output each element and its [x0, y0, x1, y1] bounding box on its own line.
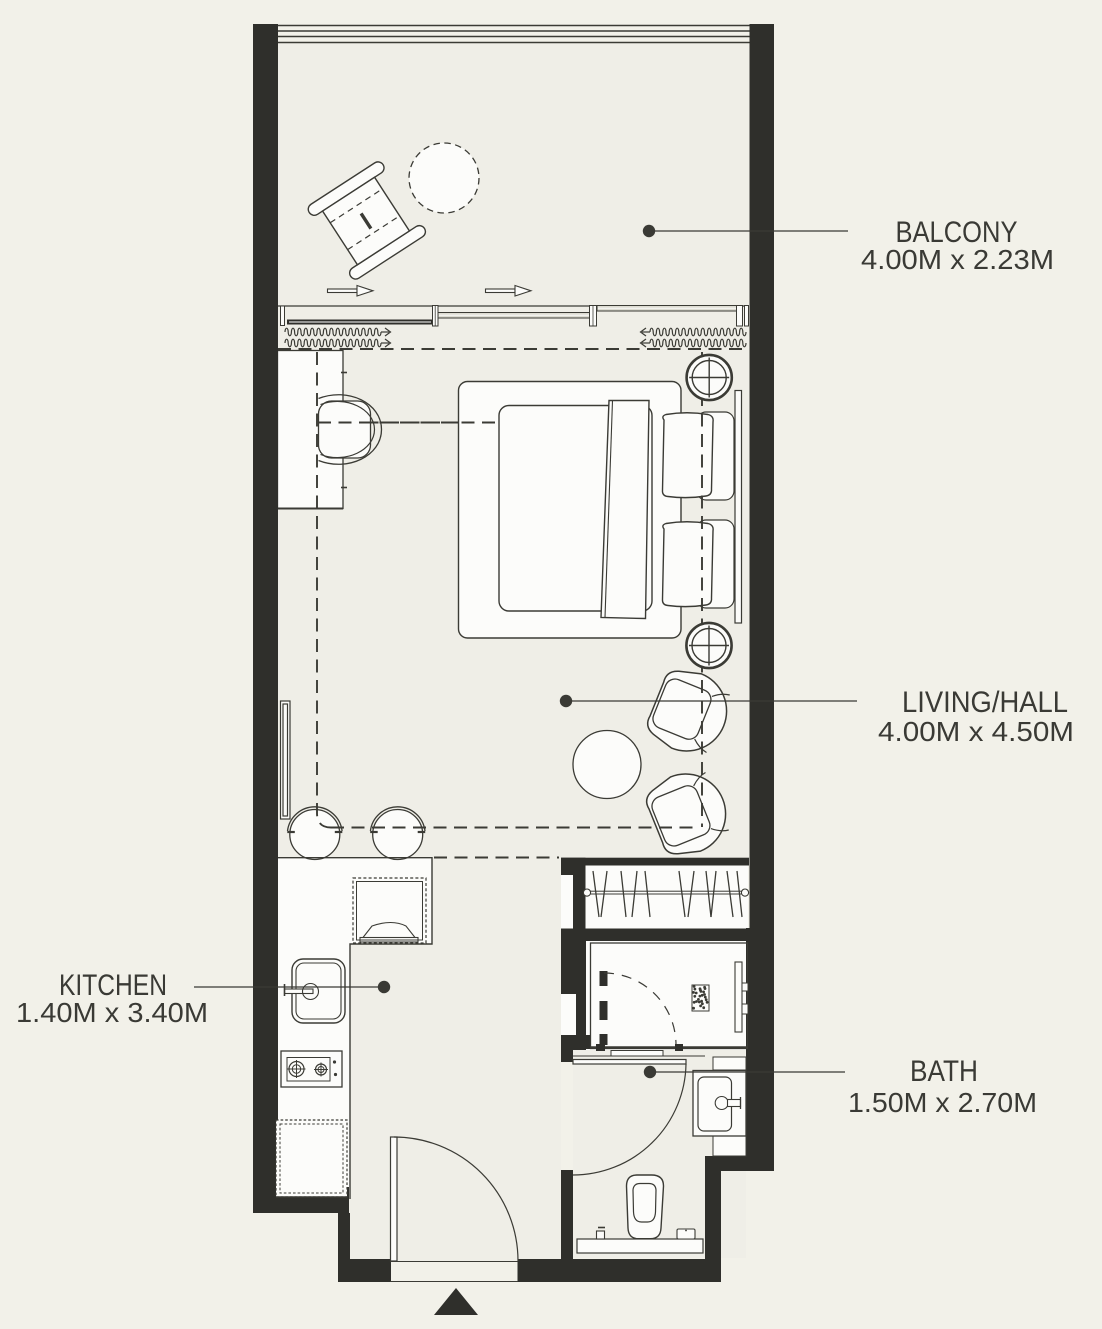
svg-text:1.40M x 3.40M: 1.40M x 3.40M	[16, 997, 208, 1028]
svg-text:4.00M x 4.50M: 4.00M x 4.50M	[878, 716, 1074, 747]
svg-text:4.00M x 2.23M: 4.00M x 2.23M	[861, 244, 1054, 275]
svg-text:LIVING/HALL: LIVING/HALL	[902, 686, 1068, 719]
svg-text:BATH: BATH	[910, 1055, 978, 1088]
svg-text:1.50M x 2.70M: 1.50M x 2.70M	[848, 1087, 1037, 1118]
